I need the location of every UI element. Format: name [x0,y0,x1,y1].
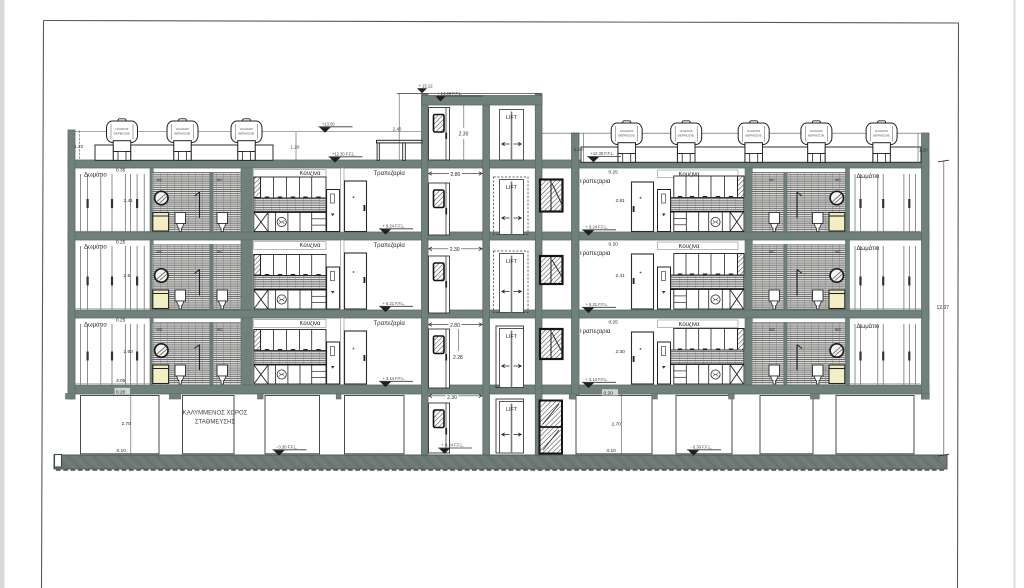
svg-text:ΣΤΑΘΜΕΥΣΗΣ: ΣΤΑΘΜΕΥΣΗΣ [195,420,236,426]
svg-text:1.20: 1.20 [74,144,83,149]
svg-text:0.25: 0.25 [609,170,619,176]
svg-text:WC: WC [217,178,223,182]
svg-text:+ 9.24 F.F.L.: + 9.24 F.F.L. [383,224,405,229]
svg-text:1.20: 1.20 [291,145,300,150]
svg-text:WC: WC [769,178,775,182]
svg-text:0.20: 0.20 [604,391,614,397]
svg-text:0.10: 0.10 [607,448,617,454]
svg-text:2.70: 2.70 [122,421,132,427]
svg-text:+13.50: +13.50 [322,122,335,127]
svg-text:2.30: 2.30 [450,247,460,253]
svg-text:ΗΛΙΑΚΟΣ: ΗΛΙΑΚΟΣ [240,127,253,131]
svg-text:+ 0.24 F.F.L.: + 0.24 F.F.L. [442,443,464,448]
svg-text:+ 15.12: + 15.12 [419,84,434,89]
svg-text:WC: WC [217,328,223,332]
svg-text:2.80: 2.80 [451,172,461,178]
svg-text:0.35: 0.35 [116,168,126,174]
svg-text:+ 3.14 F.F.L.: + 3.14 F.F.L. [383,376,405,381]
svg-text:ΗΛΙΑΚΟΣ: ΗΛΙΑΚΟΣ [747,129,760,133]
svg-text:2.41: 2.41 [616,273,626,279]
svg-text:LIFT: LIFT [506,334,518,340]
svg-text:2.30: 2.30 [459,131,469,137]
svg-text:+ 6.21 F.F.L.: + 6.21 F.F.L. [383,301,405,306]
svg-text:2.40: 2.40 [393,127,402,132]
svg-text:WC: WC [769,250,775,254]
svg-text:Τραπεζαρία: Τραπεζαρία [579,251,611,257]
svg-text:0.10: 0.10 [117,448,127,454]
svg-text:2.30: 2.30 [447,395,457,401]
svg-text:ΘΕΡΜΟΣΙΦ.: ΘΕΡΜΟΣΙΦ. [873,134,890,138]
svg-text:+ 9.24 F.F.L.: + 9.24 F.F.L. [586,225,608,230]
svg-text:2.30: 2.30 [616,349,626,355]
svg-text:ΘΕΡΜΟΣΙΦ.: ΘΕΡΜΟΣΙΦ. [745,134,762,138]
svg-text:Τραπεζαρία: Τραπεζαρία [374,171,406,177]
svg-text:2.28: 2.28 [453,355,463,361]
svg-text:WC: WC [835,250,841,254]
svg-text:ΗΛΙΑΚΟΣ: ΗΛΙΑΚΟΣ [810,129,823,133]
svg-text:WC: WC [769,328,775,332]
svg-text:2.81: 2.81 [616,198,626,204]
svg-text:WC: WC [217,250,223,254]
svg-text:0.25: 0.25 [609,320,619,326]
svg-text:2.80: 2.80 [450,323,460,329]
svg-text:Τραπεζαρία: Τραπεζαρία [374,243,406,249]
svg-text:ΗΛΙΑΚΟΣ: ΗΛΙΑΚΟΣ [875,129,888,133]
svg-text:Κουζίνα: Κουζίνα [679,172,701,178]
svg-text:0.25: 0.25 [116,318,126,324]
svg-text:0.20: 0.20 [116,389,126,395]
svg-text:Κουζίνα: Κουζίνα [679,322,701,328]
svg-text:Κουζίνα: Κουζίνα [300,321,322,327]
svg-text:WC: WC [835,328,841,332]
svg-text:ΗΛΙΑΚΟΣ: ΗΛΙΑΚΟΣ [620,129,633,133]
svg-text:3.05: 3.05 [116,378,126,384]
svg-text:+12.30 F.F.L.: +12.30 F.F.L. [332,152,356,157]
svg-text:ΗΛΙΑΚΟΣ: ΗΛΙΑΚΟΣ [680,129,693,133]
svg-text:Κουζίνα: Κουζίνα [300,171,322,177]
svg-text:Τραπεζαρία: Τραπεζαρία [579,179,611,185]
svg-text:LIFT: LIFT [506,259,518,265]
svg-text:WC: WC [157,178,163,182]
svg-text:LIFT: LIFT [506,407,518,413]
svg-text:ΘΕΡΜΟΣΙΦ.: ΘΕΡΜΟΣΙΦ. [618,134,635,138]
svg-text:+ 6.21 F.F.L.: + 6.21 F.F.L. [586,302,608,307]
svg-text:2.70: 2.70 [612,422,622,428]
svg-text:Τραπεζαρία: Τραπεζαρία [374,321,406,327]
svg-text:Κουζίνα: Κουζίνα [679,244,701,250]
svg-text:+ 14.49 F.F.L.: + 14.49 F.F.L. [437,91,462,96]
svg-text:WC: WC [835,178,841,182]
svg-text:12.07: 12.07 [937,305,950,311]
svg-text:WC: WC [157,328,163,332]
svg-text:ΘΕΡΜΟΣΙΦ.: ΘΕΡΜΟΣΙΦ. [174,132,191,136]
svg-text:Τραπεζαρία: Τραπεζαρία [579,329,611,335]
svg-text:- 0.30 F.F.L.: - 0.30 F.F.L. [691,445,712,450]
svg-text:ΗΛΙΑΚΟΣ: ΗΛΙΑΚΟΣ [115,127,128,131]
svg-text:LIFT: LIFT [506,185,518,191]
svg-text:1.20: 1.20 [919,148,928,153]
svg-text:ΘΕΡΜΟΣΙΦ.: ΘΕΡΜΟΣΙΦ. [678,134,695,138]
svg-text:ΘΕΡΜΟΣΙΦ.: ΘΕΡΜΟΣΙΦ. [113,132,130,136]
svg-text:ΗΛΙΑΚΟΣ: ΗΛΙΑΚΟΣ [176,127,189,131]
svg-text:WC: WC [157,250,163,254]
svg-text:+12.30 F.F.L.: +12.30 F.F.L. [591,151,615,156]
svg-text:+ 3.14 F.F.L.: + 3.14 F.F.L. [586,377,608,382]
svg-text:0.20: 0.20 [609,242,619,248]
svg-text:ΘΕΡΜΟΣΙΦ.: ΘΕΡΜΟΣΙΦ. [808,134,825,138]
svg-text:Δωμάτιο: Δωμάτιο [857,245,880,252]
svg-text:ΚΑΛΥΜΜΕΝΟΣ ΧΩΡΟΣ: ΚΑΛΥΜΜΕΝΟΣ ΧΩΡΟΣ [183,411,248,417]
svg-text:Κουζίνα: Κουζίνα [300,243,322,249]
svg-text:0.25: 0.25 [116,240,126,246]
svg-text:Δωμάτιο: Δωμάτιο [857,323,880,330]
svg-text:LIFT: LIFT [506,115,518,121]
svg-text:1.20: 1.20 [574,147,583,152]
svg-text:ΘΕΡΜΟΣΙΦ.: ΘΕΡΜΟΣΙΦ. [238,132,255,136]
svg-text:2.5: 2.5 [124,273,131,279]
svg-text:Δωμάτιο: Δωμάτιο [857,173,880,180]
svg-text:- 0.30 F.F.L.: - 0.30 F.F.L. [276,445,297,450]
